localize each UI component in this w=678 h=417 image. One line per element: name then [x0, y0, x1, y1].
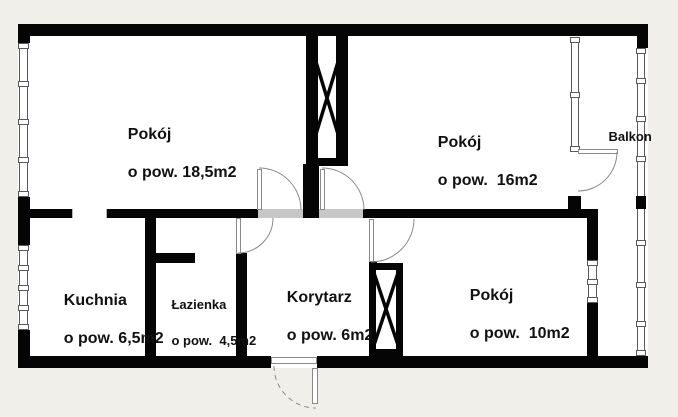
wall-room10-right-bottom: [587, 303, 598, 356]
wall-room10-right-top: [587, 218, 598, 260]
window-room16-balcony: [571, 37, 579, 152]
kitchen-doorway-opening: [72, 209, 107, 218]
room-area: o pow. 18,5m2: [128, 164, 237, 181]
label-bathroom: Łazienka o pow. 4,5m2: [157, 278, 256, 368]
room-name: Pokój: [438, 134, 482, 151]
door-threshold-room-18: [258, 209, 303, 218]
door-leaf-room18: [257, 169, 262, 210]
door-leaf-bathroom: [236, 218, 241, 254]
label-kitchen: Kuchnia o pow. 6,5m2: [46, 272, 164, 367]
wall-bathroom-stub: [155, 253, 195, 263]
label-room-16: Pokój o pow. 16m2: [420, 114, 538, 209]
label-room-10: Pokój o pow. 10m2: [452, 267, 570, 362]
room-area: o pow. 4,5m2: [171, 333, 256, 348]
label-balcony: Balkon: [594, 113, 652, 161]
room-name: Pokój: [470, 287, 514, 304]
shaft-top-right-wall: [336, 36, 348, 160]
door-leaf-entrance: [312, 368, 318, 404]
door-arc-entrance: [274, 366, 316, 408]
wall-left-middle: [18, 197, 30, 245]
wall-middle-seg-a: [30, 209, 72, 218]
room-area: o pow. 6m2: [287, 327, 374, 344]
window-room10-right: [588, 260, 597, 303]
wall-middle-seg-c: [363, 209, 598, 218]
room-name: Korytarz: [287, 289, 352, 306]
label-corridor: Korytarz o pow. 6m2: [269, 269, 373, 364]
shaft-top-left-wall: [306, 36, 318, 160]
room-area: o pow. 10m2: [470, 325, 570, 342]
wall-stub-balcony-door: [568, 196, 581, 211]
room-name: Balkon: [608, 129, 651, 144]
label-room-18: Pokój o pow. 18,5m2: [110, 106, 237, 201]
room-area: o pow. 6,5m2: [64, 330, 164, 347]
balcony-railing-post: [636, 196, 646, 209]
door-leaf-room16: [320, 169, 325, 210]
room-area: o pow. 16m2: [438, 172, 538, 189]
door-threshold-room-16: [319, 209, 363, 218]
room-name: Łazienka: [171, 297, 226, 312]
wall-top: [18, 24, 648, 36]
wall-corner-top-right: [637, 24, 648, 48]
shaft-bottom-right-wall: [396, 263, 403, 356]
floorplan-canvas: Pokój o pow. 18,5m2 Pokój o pow. 16m2 Ba…: [0, 0, 678, 417]
room-name: Kuchnia: [64, 292, 127, 309]
window-room18-left: [19, 43, 28, 197]
wall-left-bottom: [18, 330, 30, 368]
wall-stub-between-doors: [303, 164, 319, 218]
shaft-bottom-bottom-bar: [369, 349, 403, 356]
wall-middle-seg-b: [107, 209, 258, 218]
wall-corner-top-left: [18, 24, 30, 43]
window-kitchen-left: [19, 245, 28, 330]
door-leaf-room10: [369, 219, 374, 262]
room-name: Pokój: [128, 126, 172, 143]
